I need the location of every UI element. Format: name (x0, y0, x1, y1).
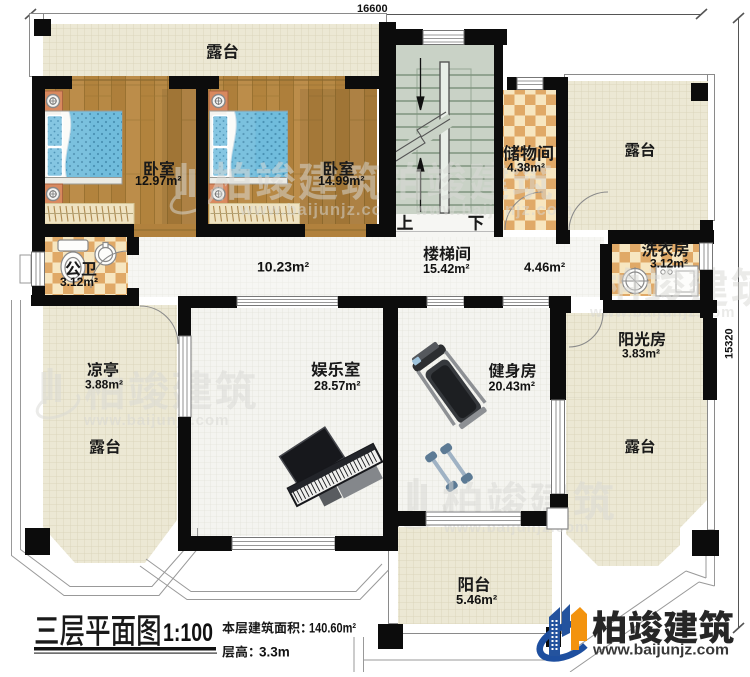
svg-text:3.3m: 3.3m (259, 645, 290, 660)
svg-text:www.baijunjz.com: www.baijunjz.com (592, 643, 729, 659)
svg-text:12.97m²: 12.97m² (135, 174, 182, 188)
svg-text:4.38m²: 4.38m² (507, 161, 545, 175)
svg-text:3.88m²: 3.88m² (85, 378, 123, 392)
svg-text:3.12m²: 3.12m² (60, 275, 98, 289)
svg-text:3.12m²: 3.12m² (650, 257, 688, 271)
svg-text:15.42m²: 15.42m² (423, 262, 470, 276)
svg-text:3.83m²: 3.83m² (622, 347, 660, 361)
svg-text:140.60m²: 140.60m² (309, 621, 356, 636)
svg-text:www.baijunjz.com: www.baijunjz.com (414, 201, 573, 219)
svg-text:www.baijunjz.com: www.baijunjz.com (239, 201, 398, 219)
svg-text:5.46m²: 5.46m² (456, 592, 498, 607)
svg-text:4.46m²: 4.46m² (524, 260, 566, 275)
svg-text:15320: 15320 (724, 328, 736, 359)
svg-text:1:100: 1:100 (163, 619, 213, 647)
svg-text:www.baijunjz.com: www.baijunjz.com (83, 412, 229, 429)
svg-text:28.57m²: 28.57m² (314, 379, 361, 393)
svg-text:10.23m²: 10.23m² (257, 259, 309, 275)
svg-text:20.43m²: 20.43m² (489, 380, 536, 394)
svg-text:14.99m²: 14.99m² (318, 174, 365, 188)
